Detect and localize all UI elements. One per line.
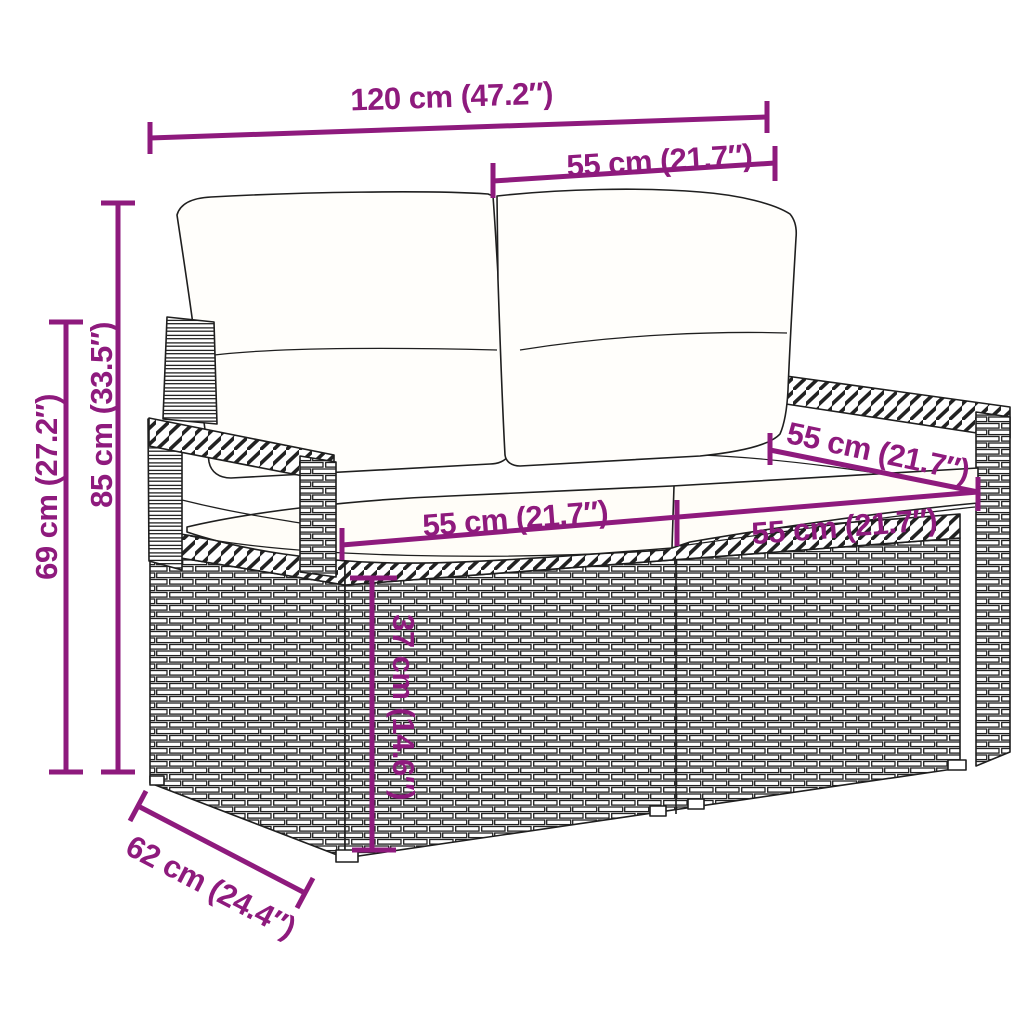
sofa-foot — [688, 799, 704, 809]
label-seat-width-top: 55 cm (21.7″) — [566, 137, 754, 183]
sofa-foot — [150, 776, 164, 785]
base-left-face — [150, 553, 345, 858]
label-total-height: 85 cm (33.5″) — [84, 322, 119, 508]
right-armrest-post — [976, 412, 1010, 766]
left-armrest-front-post — [300, 456, 336, 577]
right-back-cushion — [497, 189, 796, 466]
label-arm-height: 69 cm (27.2″) — [29, 394, 64, 580]
sofa-foot — [948, 760, 966, 770]
sofa-dimension-drawing: 120 cm (47.2″) 55 cm (21.7″) 85 cm (33.5… — [0, 0, 1024, 1024]
label-total-width: 120 cm (47.2″) — [350, 75, 554, 117]
sofa-foot — [650, 806, 666, 816]
label-seat-height: 37 cm (14.6″) — [386, 614, 421, 800]
left-armrest-post — [163, 317, 217, 424]
product-dimension-diagram: 120 cm (47.2″) 55 cm (21.7″) 85 cm (33.5… — [0, 0, 1024, 1024]
